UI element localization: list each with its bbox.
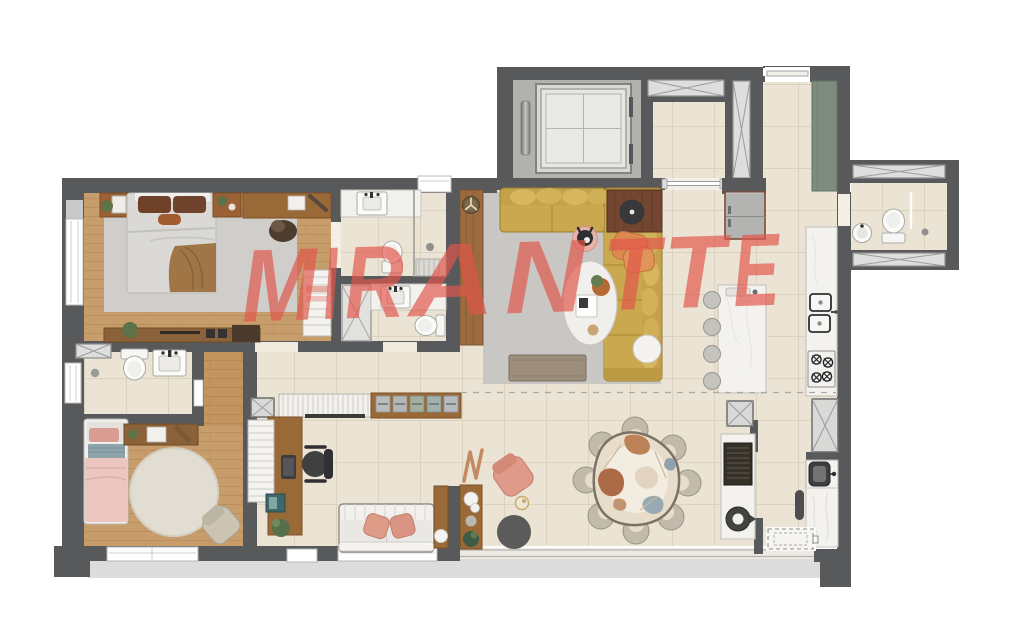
- svg-text:M: M: [239, 226, 321, 343]
- svg-text:R: R: [342, 224, 406, 341]
- svg-text:E: E: [731, 212, 783, 328]
- svg-text:A: A: [403, 221, 496, 339]
- svg-text:N: N: [502, 218, 589, 336]
